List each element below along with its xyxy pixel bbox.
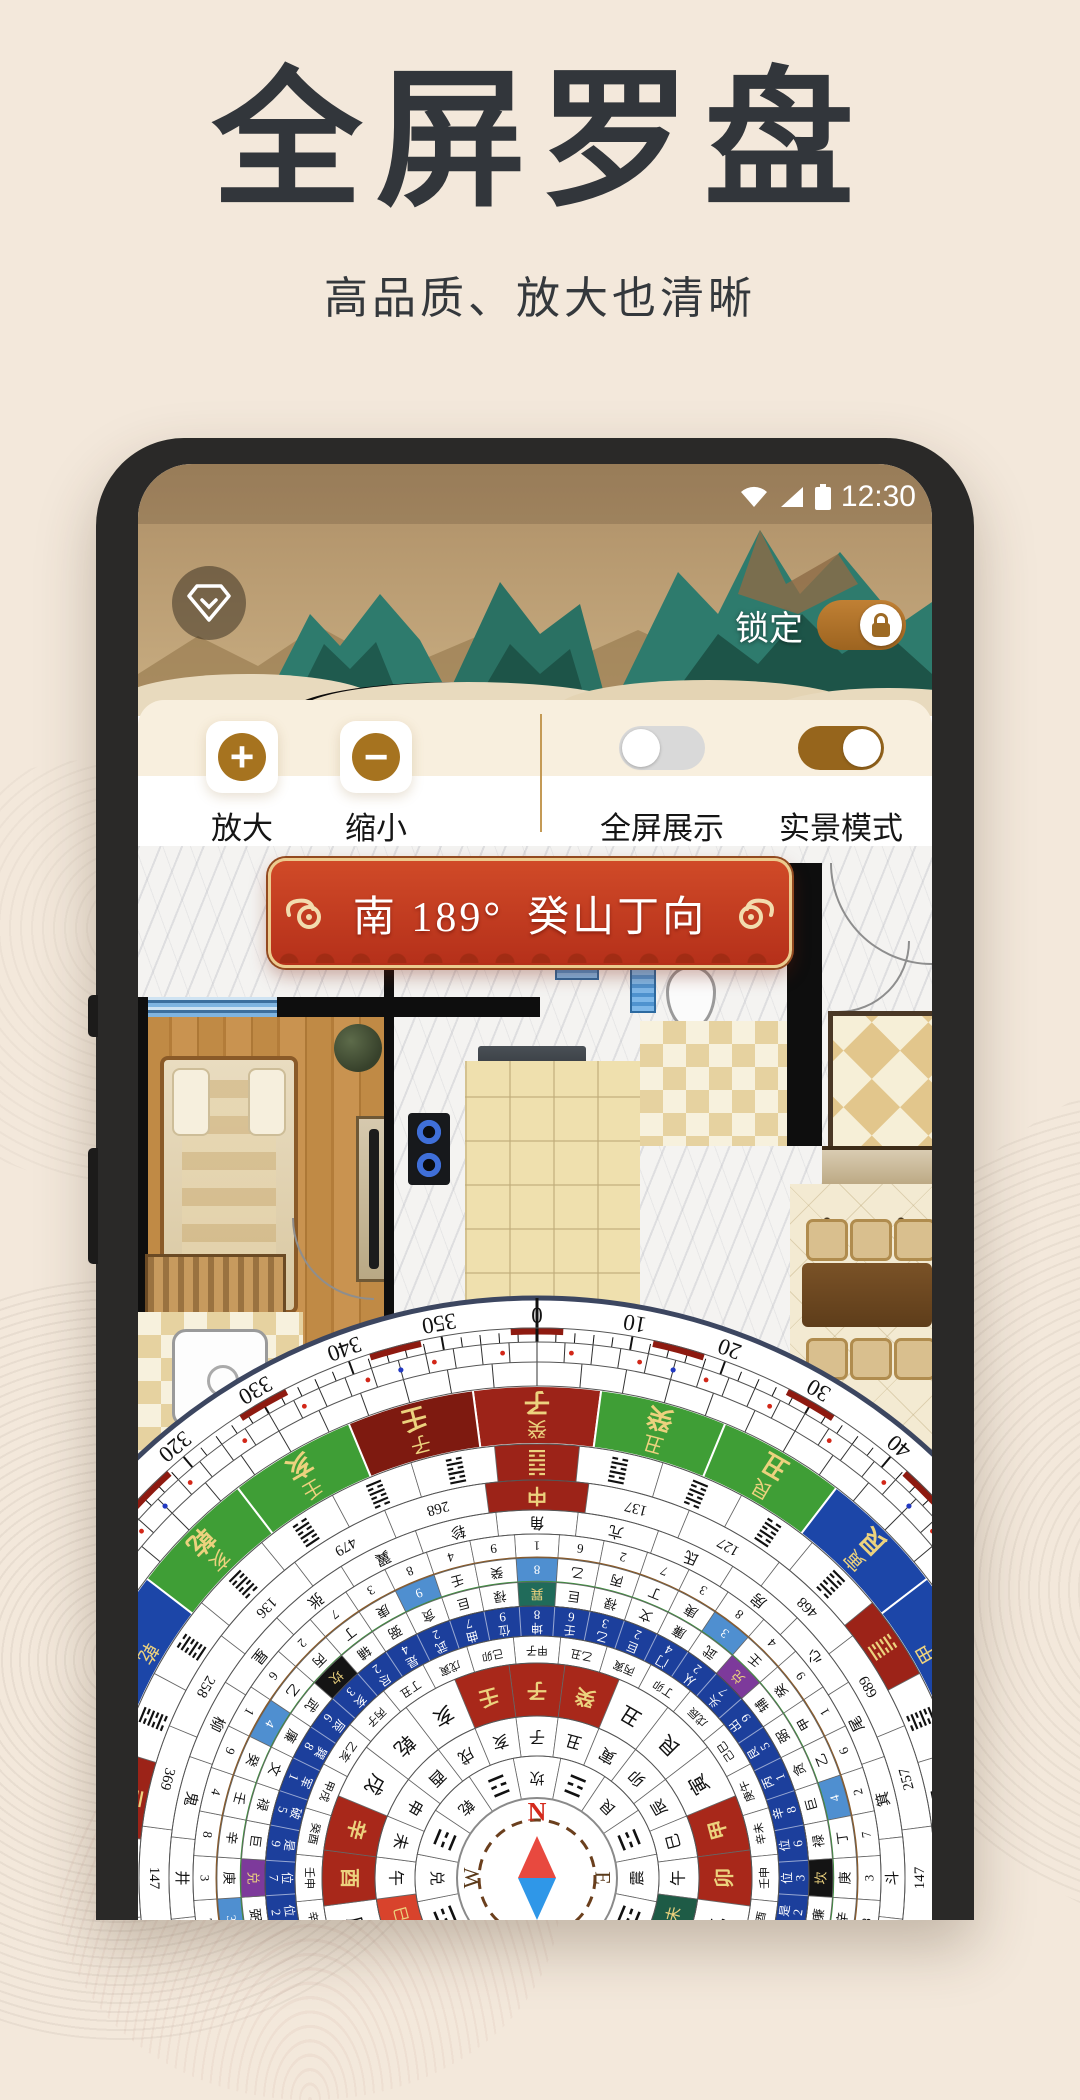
svg-text:子: 子 (527, 1679, 547, 1701)
svg-text:8: 8 (534, 1608, 541, 1623)
svg-text:位: 位 (779, 1872, 794, 1884)
svg-text:乙: 乙 (570, 1564, 585, 1581)
svg-text:147: 147 (146, 1867, 162, 1890)
zoom-out-label: 缩小 (345, 803, 407, 848)
svg-text:兑: 兑 (428, 1870, 445, 1885)
lock-label: 锁定 (735, 601, 803, 650)
svg-text:坎: 坎 (529, 1769, 544, 1786)
svg-text:庚: 庚 (838, 1871, 853, 1884)
svg-text:禄: 禄 (492, 1588, 507, 1605)
svg-text:位: 位 (497, 1622, 511, 1638)
lock-control: 锁定 (735, 600, 906, 650)
svg-text:角: 角 (529, 1514, 544, 1531)
svg-text:中: 中 (527, 1484, 547, 1508)
svg-text:是: 是 (777, 1904, 792, 1918)
svg-text:壬: 壬 (563, 1622, 577, 1637)
svg-text:兑: 兑 (246, 1871, 261, 1884)
realview-toggle[interactable] (798, 726, 884, 770)
svg-text:午: 午 (670, 1870, 688, 1886)
phone-volume-button (88, 1148, 98, 1264)
svg-text:147: 147 (912, 1866, 928, 1889)
svg-text:3: 3 (862, 1875, 877, 1882)
svg-text:坤: 坤 (531, 1621, 543, 1636)
svg-text:巨: 巨 (247, 1833, 264, 1848)
degree-reading: 南 189° (353, 883, 503, 944)
page-title: 全屏罗盘 (0, 60, 1080, 225)
luopan-compass[interactable]: 子癸癸丑丑艮艮寅寅甲甲卯卯乙乙辰辰巽巽巳巳丙丙午午丁丁未未坤坤申申庚庚酉酉辛辛戌… (138, 464, 932, 1920)
svg-text:W: W (459, 1867, 484, 1888)
status-time: 12:30 (841, 480, 916, 514)
cloud-swirl-icon (283, 893, 329, 933)
zoom-in-button[interactable]: + (206, 721, 278, 793)
svg-text:酉: 酉 (338, 1868, 360, 1888)
fullscreen-label: 全屏展示 (600, 803, 724, 848)
svg-text:廉: 廉 (810, 1908, 827, 1920)
svg-text:1: 1 (534, 1539, 541, 1554)
signal-icon (779, 485, 805, 509)
svg-text:壬申: 壬申 (303, 1867, 316, 1889)
svg-text:井: 井 (173, 1870, 190, 1885)
svg-text:E: E (591, 1871, 616, 1884)
svg-text:禄: 禄 (810, 1833, 827, 1848)
svg-text:巽: 巽 (530, 1587, 543, 1602)
plus-icon: + (218, 733, 266, 781)
diamond-icon (187, 582, 231, 624)
svg-text:3: 3 (198, 1875, 213, 1882)
panel-divider (540, 714, 542, 832)
svg-text:7: 7 (267, 1875, 282, 1882)
lock-toggle[interactable] (817, 600, 906, 650)
zoom-in-label: 放大 (211, 803, 273, 848)
svg-text:癸: 癸 (527, 1417, 547, 1440)
svg-text:弼: 弼 (247, 1908, 264, 1920)
svg-text:3: 3 (793, 1875, 808, 1882)
page-subtitle: 高品质、放大也清晰 (0, 262, 1080, 326)
svg-text:8: 8 (534, 1563, 541, 1578)
svg-text:是: 是 (281, 1838, 296, 1852)
realview-label: 实景模式 (779, 803, 903, 848)
svg-text:癸: 癸 (489, 1564, 504, 1581)
svg-text:位: 位 (281, 1904, 297, 1918)
svg-text:震: 震 (629, 1870, 646, 1885)
minus-icon: − (352, 733, 400, 781)
control-panel: + − 放大 缩小 全屏展示 实景模式 (138, 700, 932, 846)
svg-text:位: 位 (776, 1838, 792, 1852)
cloud-swirl-icon (731, 893, 777, 933)
status-bar: 12:30 (739, 480, 916, 514)
zoom-out-button[interactable]: − (340, 721, 412, 793)
svg-text:N: N (528, 1798, 547, 1827)
svg-text:卯: 卯 (713, 1868, 736, 1888)
phone-screen: 12:30 锁定 (138, 464, 932, 1920)
svg-text:位: 位 (280, 1872, 295, 1884)
svg-text:辛: 辛 (223, 1830, 240, 1845)
svg-text:午: 午 (387, 1870, 405, 1886)
svg-text:壬申: 壬申 (758, 1867, 771, 1889)
fullscreen-toggle[interactable] (619, 726, 705, 770)
svg-text:坎: 坎 (814, 1871, 829, 1884)
svg-text:子: 子 (524, 1388, 550, 1417)
wifi-icon (739, 485, 769, 509)
phone-mockup: 12:30 锁定 (96, 438, 974, 1920)
svg-text:3: 3 (224, 1914, 240, 1920)
lock-icon (872, 623, 890, 637)
lock-toggle-knob (860, 604, 902, 646)
svg-text:10: 10 (621, 1309, 648, 1338)
phone-power-button (88, 995, 98, 1037)
battery-icon (815, 484, 831, 510)
svg-text:甲子: 甲子 (526, 1644, 548, 1657)
mountain-direction-reading: 癸山丁向 (527, 883, 707, 944)
svg-text:子: 子 (529, 1728, 545, 1746)
svg-text:庚: 庚 (222, 1871, 237, 1884)
direction-banner: 南 189° 癸山丁向 (268, 858, 792, 968)
vip-diamond-badge[interactable] (172, 566, 246, 640)
svg-text:丁: 丁 (834, 1830, 851, 1845)
svg-text:斗: 斗 (885, 1870, 901, 1885)
svg-text:巨: 巨 (567, 1588, 582, 1605)
